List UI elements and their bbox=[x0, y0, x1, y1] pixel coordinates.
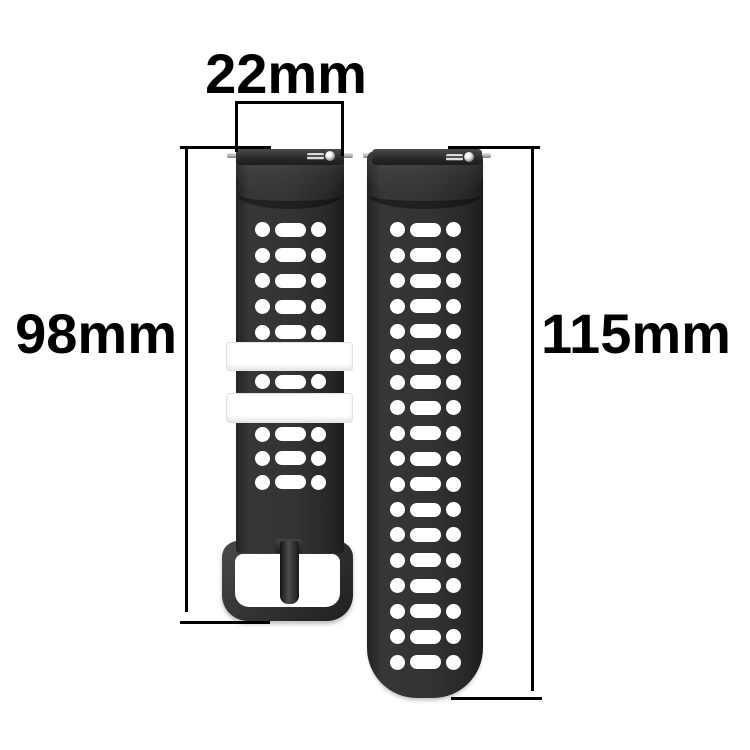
right-dim-vertical-line bbox=[531, 149, 534, 691]
strap-hole bbox=[446, 655, 461, 670]
strap-hole bbox=[446, 578, 461, 593]
strap-hole bbox=[446, 222, 461, 237]
strap-hole bbox=[410, 324, 441, 338]
strap-hole-row bbox=[367, 624, 483, 649]
width-bracket-tick-left bbox=[235, 101, 238, 152]
strap-hole-row bbox=[236, 294, 344, 320]
strap-hole bbox=[275, 223, 306, 237]
strap-curve-shadow bbox=[369, 181, 481, 209]
strap-hole bbox=[255, 273, 270, 288]
strap-hole bbox=[446, 629, 461, 644]
right-dim-cap-bottom bbox=[451, 697, 542, 700]
strap-hole bbox=[311, 222, 326, 237]
strap-hole bbox=[410, 375, 441, 389]
strap-hole bbox=[446, 604, 461, 619]
strap-hole bbox=[446, 375, 461, 390]
strap-hole-row bbox=[367, 649, 483, 674]
strap-hole bbox=[390, 349, 405, 364]
strap-hole bbox=[410, 553, 441, 567]
strap-hole bbox=[311, 273, 326, 288]
strap-hole bbox=[390, 604, 405, 619]
left-strap-holes-mid bbox=[236, 369, 344, 394]
strap-hole-row bbox=[367, 293, 483, 318]
strap-hole-row bbox=[236, 470, 344, 494]
left-dim-vertical-line bbox=[185, 149, 188, 612]
strap-hole bbox=[311, 451, 326, 466]
strap-hole bbox=[275, 274, 306, 288]
strap-hole bbox=[275, 248, 306, 262]
strap-hole-row bbox=[367, 370, 483, 395]
strap-hole bbox=[410, 477, 441, 491]
strap-hole bbox=[410, 248, 441, 262]
strap-hole bbox=[255, 299, 270, 314]
strap-hole bbox=[390, 451, 405, 466]
left-strap-holes-top bbox=[236, 217, 344, 345]
strap-hole bbox=[446, 426, 461, 441]
quick-release-knob bbox=[464, 152, 474, 162]
strap-hole bbox=[275, 300, 306, 314]
strap-hole bbox=[255, 325, 270, 340]
strap-hole bbox=[446, 299, 461, 314]
strap-hole bbox=[410, 426, 441, 440]
strap-hole bbox=[255, 222, 270, 237]
right-dim-cap-top bbox=[448, 146, 540, 149]
strap-hole-row bbox=[367, 344, 483, 369]
right-strap-holes bbox=[367, 217, 483, 675]
strap-hole bbox=[275, 427, 306, 441]
strap-hole bbox=[410, 223, 441, 237]
strap-hole-row bbox=[367, 599, 483, 624]
strap-hole bbox=[446, 324, 461, 339]
strap-hole bbox=[255, 451, 270, 466]
quick-release-bar bbox=[446, 154, 463, 161]
strap-hole-row bbox=[367, 217, 483, 242]
strap-hole bbox=[390, 375, 405, 390]
strap-hole-row bbox=[367, 421, 483, 446]
strap-hole-row bbox=[367, 395, 483, 420]
strap-hole bbox=[390, 426, 405, 441]
strap-hole bbox=[410, 579, 441, 593]
strap-hole bbox=[446, 349, 461, 364]
strap-hole bbox=[390, 527, 405, 542]
strap-hole bbox=[311, 374, 326, 389]
strap-hole bbox=[446, 451, 461, 466]
strap-hole bbox=[410, 274, 441, 288]
width-bracket-line bbox=[237, 101, 344, 104]
strap-hole bbox=[311, 325, 326, 340]
strap-hole bbox=[410, 528, 441, 542]
strap-hole-row bbox=[367, 268, 483, 293]
strap-hole bbox=[390, 324, 405, 339]
spring-bar-pin bbox=[482, 153, 491, 158]
width-bracket-tick-right bbox=[341, 101, 344, 156]
strap-hole bbox=[390, 400, 405, 415]
left-strap-length-label: 98mm bbox=[10, 306, 177, 362]
strap-hole bbox=[446, 527, 461, 542]
strap-keeper bbox=[226, 393, 353, 423]
strap-hole bbox=[255, 427, 270, 442]
quick-release-bar bbox=[307, 153, 324, 160]
strap-hole-row bbox=[367, 548, 483, 573]
width-dimension-label: 22mm bbox=[196, 46, 376, 102]
right-strap-length-label: 115mm bbox=[541, 306, 741, 362]
strap-hole bbox=[390, 655, 405, 670]
strap-hole bbox=[446, 553, 461, 568]
left-strap-holes-bottom bbox=[236, 422, 344, 494]
left-dim-cap-bottom bbox=[180, 621, 270, 624]
strap-hole bbox=[410, 299, 441, 313]
strap-hole bbox=[446, 477, 461, 492]
strap-hole bbox=[390, 553, 405, 568]
strap-hole-row bbox=[236, 268, 344, 294]
strap-hole bbox=[410, 401, 441, 415]
strap-hole-row bbox=[236, 446, 344, 470]
strap-hole bbox=[446, 248, 461, 263]
strap-hole-row bbox=[367, 573, 483, 598]
strap-hole bbox=[410, 503, 441, 517]
buckle-prong bbox=[280, 541, 299, 604]
strap-hole-row bbox=[236, 369, 344, 394]
strap-hole-row bbox=[367, 242, 483, 267]
strap-hole bbox=[311, 427, 326, 442]
strap-hole bbox=[255, 248, 270, 263]
strap-hole-row bbox=[236, 422, 344, 446]
strap-hole bbox=[446, 273, 461, 288]
strap-hole bbox=[446, 502, 461, 517]
quick-release-knob bbox=[325, 151, 335, 161]
strap-hole bbox=[275, 325, 306, 339]
quick-release-lever-icon bbox=[446, 152, 474, 162]
quick-release-lever-icon bbox=[307, 151, 335, 161]
strap-hole-row bbox=[236, 217, 344, 243]
strap-hole-row bbox=[367, 471, 483, 496]
strap-hole bbox=[410, 604, 441, 618]
strap-hole bbox=[410, 452, 441, 466]
strap-hole-row bbox=[367, 522, 483, 547]
strap-hole bbox=[390, 502, 405, 517]
strap-hole bbox=[390, 477, 405, 492]
left-dim-cap-top bbox=[180, 146, 271, 149]
strap-hole bbox=[390, 299, 405, 314]
strap-hole bbox=[390, 629, 405, 644]
strap-hole bbox=[446, 400, 461, 415]
strap-hole bbox=[255, 475, 270, 490]
strap-hole-row bbox=[367, 497, 483, 522]
strap-hole-row bbox=[367, 319, 483, 344]
strap-hole-row bbox=[236, 243, 344, 269]
strap-curve-shadow bbox=[238, 181, 342, 209]
strap-hole bbox=[275, 475, 306, 489]
strap-hole-row bbox=[367, 446, 483, 471]
strap-hole bbox=[275, 451, 306, 465]
strap-hole bbox=[410, 655, 441, 669]
strap-hole bbox=[390, 273, 405, 288]
spring-bar-pin bbox=[343, 153, 353, 158]
strap-hole bbox=[255, 374, 270, 389]
strap-hole bbox=[311, 475, 326, 490]
strap-hole bbox=[390, 222, 405, 237]
strap-hole bbox=[410, 630, 441, 644]
strap-hole bbox=[275, 375, 306, 389]
watchband-dimension-diagram: 22mm 98mm 115mm bbox=[0, 0, 750, 750]
strap-hole bbox=[311, 299, 326, 314]
strap-hole bbox=[311, 248, 326, 263]
strap-hole bbox=[390, 248, 405, 263]
strap-hole bbox=[390, 578, 405, 593]
strap-hole bbox=[410, 350, 441, 364]
strap-keeper bbox=[226, 342, 353, 371]
